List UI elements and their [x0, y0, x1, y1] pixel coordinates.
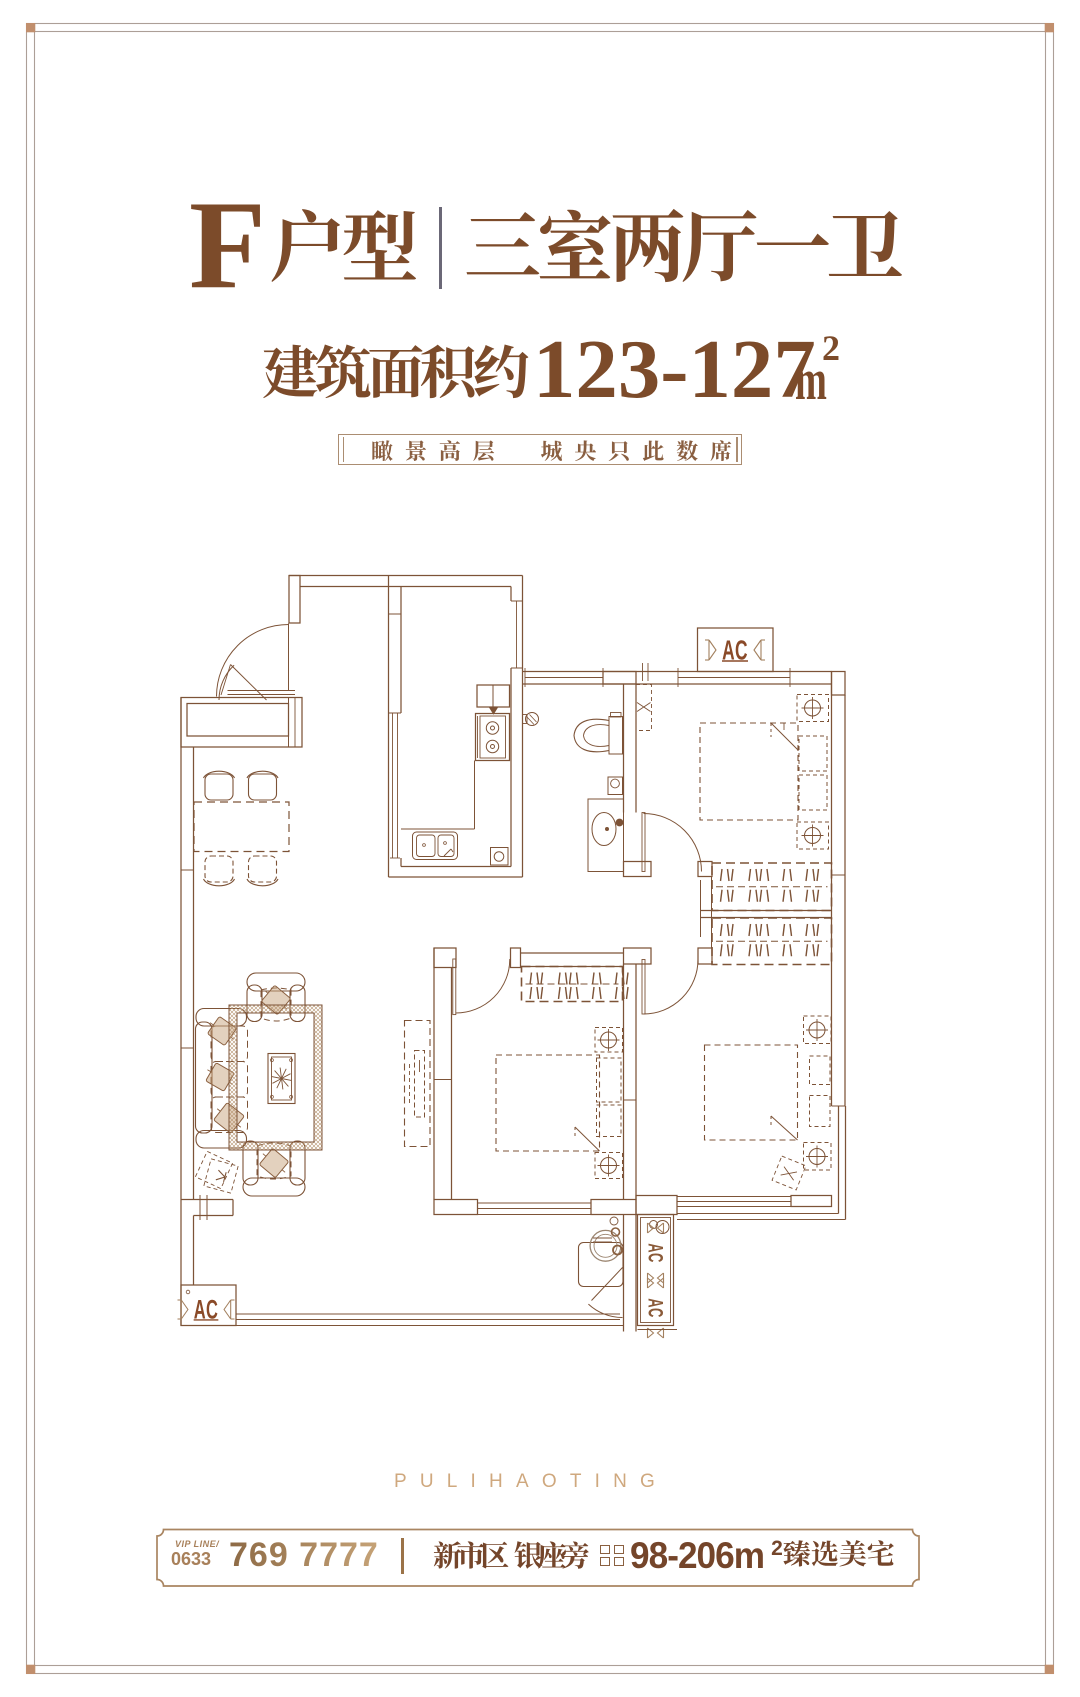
- svg-text:AC: AC: [643, 1243, 667, 1262]
- svg-text:AC: AC: [643, 1298, 667, 1317]
